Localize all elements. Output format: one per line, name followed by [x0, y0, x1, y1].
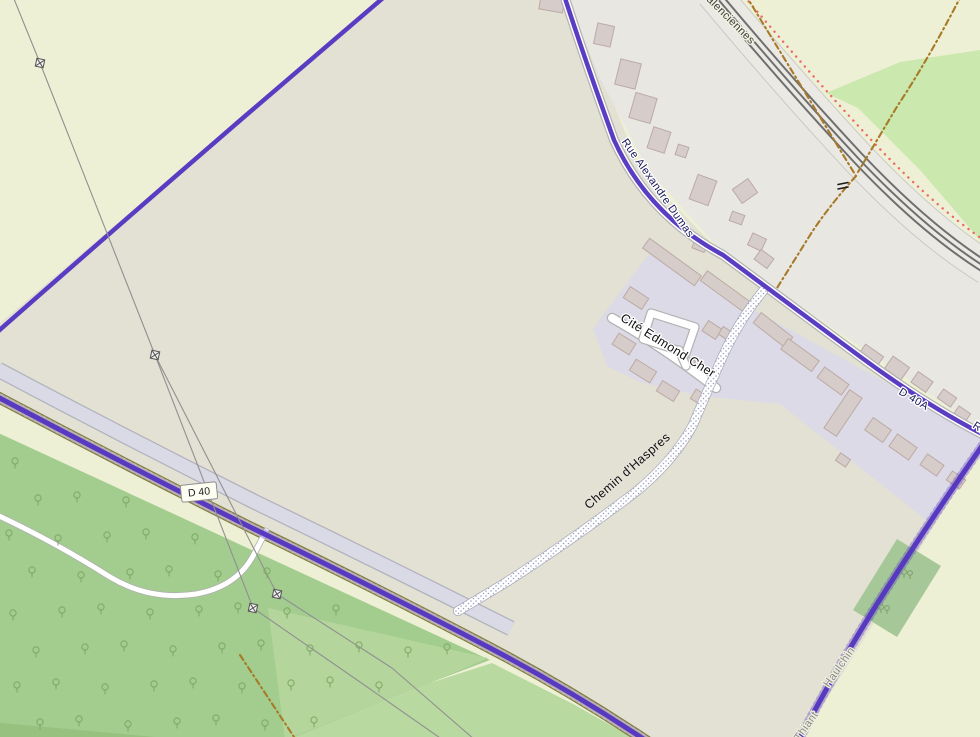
map-canvas[interactable]: D 40 ValenciennesRue Alexandre DumasCité…	[0, 0, 980, 737]
building	[594, 23, 615, 47]
road-ref-badge: D 40	[180, 482, 218, 503]
power-pylon-icon	[150, 350, 159, 359]
power-pylon-icon	[248, 603, 257, 612]
power-pylon-icon	[272, 589, 281, 598]
power-pylon-icon	[35, 58, 44, 67]
road-ref-badge-text: D 40	[187, 485, 210, 499]
map-svg[interactable]: D 40 ValenciennesRue Alexandre DumasCité…	[0, 0, 980, 737]
